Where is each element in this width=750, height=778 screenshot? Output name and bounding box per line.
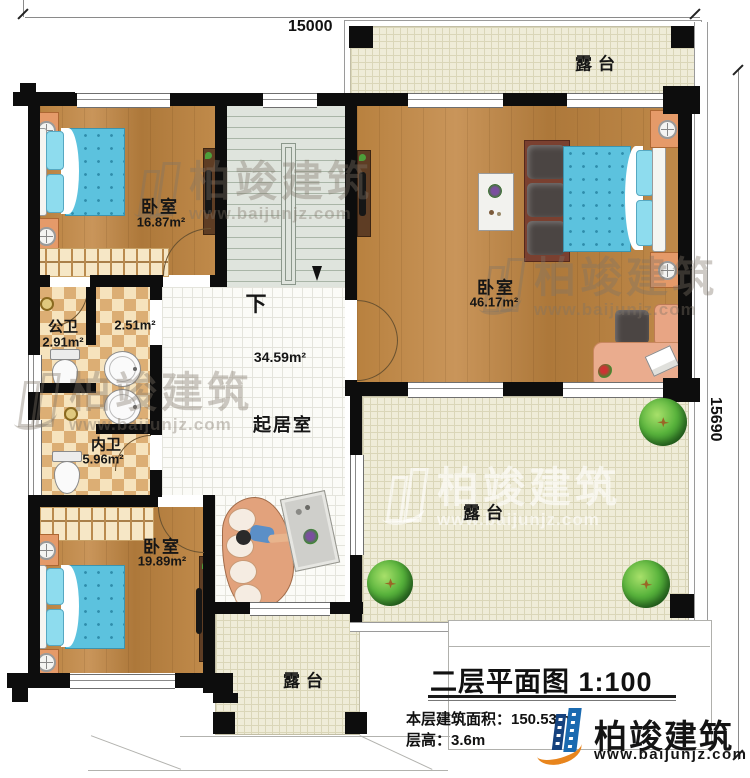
column (670, 594, 694, 618)
window (563, 382, 663, 398)
wall (170, 93, 263, 106)
area-label-bath-public: 2.91m² (42, 335, 83, 350)
ceiling-lamp-icon (64, 407, 78, 421)
wall (503, 382, 563, 396)
bed (33, 565, 125, 649)
window (28, 420, 42, 497)
column (349, 26, 373, 48)
lamp-icon (658, 261, 677, 280)
area-label-living: 34.59m² (254, 349, 306, 365)
wall (503, 93, 567, 106)
tv-icon (205, 170, 212, 214)
wall (90, 275, 163, 287)
terrace-label-top: 露台 (575, 50, 621, 75)
flower-icon (598, 364, 613, 379)
wall (7, 673, 70, 688)
tree-icon (622, 560, 670, 608)
area-label-bedroom-tl: 16.87m² (137, 215, 185, 230)
wall (317, 93, 408, 106)
tree-icon (639, 398, 687, 446)
wall (175, 673, 203, 688)
wall (345, 93, 357, 287)
decor-dot (489, 210, 494, 215)
wall (12, 688, 28, 702)
area-label-bedroom-bl: 19.89m² (138, 554, 186, 569)
tree-icon (367, 560, 413, 606)
title-underline (428, 695, 676, 698)
wall (28, 92, 40, 355)
plant-leaf-icon (359, 154, 366, 161)
roof-line-diagonal (91, 735, 181, 770)
bed-headboard (652, 146, 666, 252)
tv-icon (359, 172, 366, 216)
sink (104, 351, 141, 387)
column (213, 712, 235, 734)
armchair (527, 145, 565, 179)
brand-website: www.baijunjz.com (594, 746, 747, 763)
decor-dot (497, 212, 501, 216)
room-label-living: 起居室 (253, 411, 313, 437)
column (345, 712, 367, 734)
window (263, 93, 317, 108)
dim-line-top (25, 17, 700, 18)
side-table (478, 173, 514, 231)
decor-dot (305, 505, 311, 511)
bed-pillow (46, 131, 64, 170)
bed-pillow (46, 609, 64, 646)
window (250, 602, 330, 616)
area-label-wash: 2.51m² (114, 318, 155, 333)
lamp-icon (658, 120, 677, 139)
room-label-bath-public: 公卫 (48, 316, 78, 337)
bed-blanket (563, 146, 631, 252)
decor-dot (295, 508, 302, 515)
plan-title-text: 二层平面图 (430, 667, 570, 697)
window (567, 93, 663, 108)
column (671, 26, 695, 48)
window (350, 455, 364, 555)
dim-label-top: 15000 (288, 18, 333, 36)
tv-icon (196, 588, 202, 634)
wall (203, 602, 250, 614)
armchair (527, 221, 565, 255)
floor-plan-canvas: 15000 15690 露台 (0, 0, 750, 778)
wall (28, 392, 40, 420)
wall (678, 93, 692, 396)
wall (350, 396, 362, 455)
window (70, 674, 175, 689)
wall (330, 602, 363, 614)
floor-height-text: 层高：3.6m (406, 729, 485, 750)
wall (345, 287, 357, 300)
plant-leaf-icon (205, 152, 212, 159)
wall (28, 495, 158, 507)
bed (563, 146, 664, 252)
window (77, 93, 170, 108)
flower-icon (302, 527, 321, 546)
person-head (236, 530, 251, 545)
flower-icon (488, 184, 502, 198)
armchair (527, 183, 565, 217)
terrace-label-right: 露台 (463, 499, 509, 524)
terrace-label-bottom: 露台 (283, 667, 329, 692)
plan-title: 二层平面图 1:100 (430, 660, 653, 699)
window (408, 382, 503, 398)
bed-pillow (46, 568, 64, 605)
roof-line (88, 770, 448, 771)
wall (150, 470, 162, 497)
area-label-bath-private: 5.96m² (82, 452, 123, 467)
area-label-bedroom-r: 46.17m² (470, 295, 518, 310)
wall (213, 693, 238, 703)
stair-rail (281, 143, 296, 285)
wall (345, 382, 408, 396)
living-floor-upper (162, 287, 345, 495)
logo-swoosh (533, 730, 585, 770)
sink (104, 389, 141, 425)
wall (150, 345, 162, 435)
closet (33, 248, 169, 277)
bed-pillow (46, 174, 64, 213)
desk-chair (615, 310, 649, 344)
wall (40, 383, 96, 393)
terrace-top-floor (350, 26, 696, 96)
wall (215, 106, 227, 287)
wall (203, 495, 215, 673)
wall (210, 275, 227, 287)
roof-line (448, 646, 710, 647)
stair-arrow-down-icon (312, 266, 322, 281)
dim-label-right: 15690 (706, 397, 724, 442)
wall (96, 424, 150, 434)
wall (150, 287, 162, 300)
window (408, 93, 503, 108)
wall (28, 497, 40, 673)
brand-logo-icon (536, 706, 590, 768)
stair-direction-label: 下 (246, 288, 267, 318)
title-underline-thin (428, 700, 676, 701)
dim-line-right (738, 70, 739, 760)
wall (203, 673, 233, 693)
wall (86, 287, 96, 345)
wall (28, 275, 50, 287)
bed (33, 128, 125, 216)
plan-scale: 1:100 (579, 667, 653, 697)
